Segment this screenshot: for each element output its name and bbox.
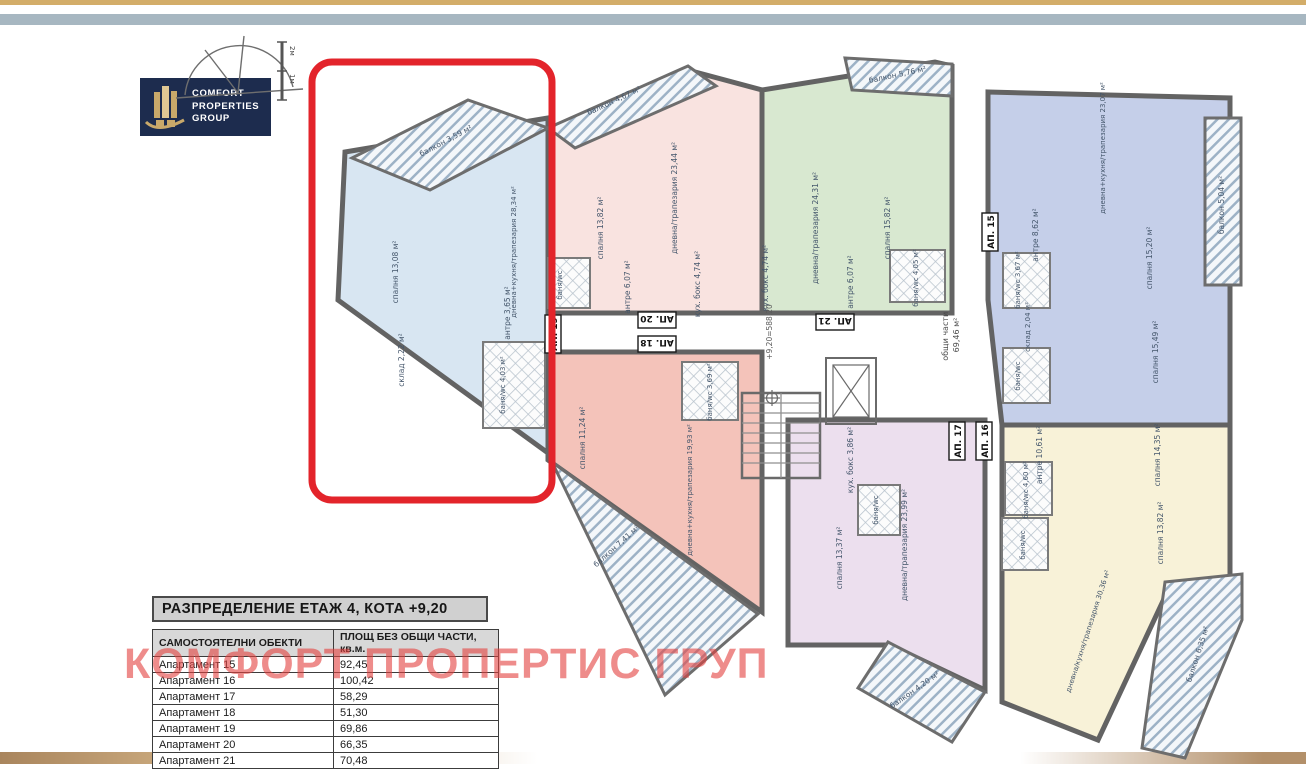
- svg-text:АП. 20: АП. 20: [640, 313, 674, 323]
- room-label: дневна/трапезария 24,31 м²: [811, 172, 820, 284]
- table-row: Апартамент 1758,29: [153, 689, 499, 705]
- badge-ap16: АП. 16: [976, 422, 992, 460]
- elevation-label: +9,20=588,20: [765, 304, 774, 360]
- table-row: Апартамент 2170,48: [153, 753, 499, 769]
- apartment-area: 70,48: [334, 753, 499, 769]
- apartment-area: 58,29: [334, 689, 499, 705]
- svg-text:АП. 18: АП. 18: [640, 337, 674, 347]
- apartment-name: Апартамент 19: [153, 721, 334, 737]
- room-label: антре 8,62 м²: [1031, 208, 1040, 261]
- room-label: баня/wc 4,60 м²: [1022, 461, 1030, 519]
- apartment-area: 69,86: [334, 721, 499, 737]
- room-label: баня/wc: [556, 270, 564, 299]
- room-label: спалня 14,35 м²: [1153, 424, 1162, 487]
- room-label: кух. бокс 4,74 м²: [761, 245, 770, 311]
- apartment-15-bathroom-2: [1003, 348, 1050, 403]
- svg-text:АП. 16: АП. 16: [981, 424, 991, 458]
- room-label: баня/wc 3,67 м²: [1014, 251, 1022, 309]
- room-label: спалня 15,49 м²: [1151, 321, 1160, 384]
- badge-ap21: АП. 21: [816, 314, 854, 330]
- room-label: дневна/трапезария 23,99 м²: [900, 489, 909, 601]
- common-area-label: общи части 69,46 м²: [941, 309, 961, 361]
- apartment-name: Апартамент 20: [153, 737, 334, 753]
- apartment-19-bathroom: [483, 342, 545, 428]
- room-label: спалня 15,82 м²: [883, 197, 892, 260]
- room-label: спалня 11,24 м²: [578, 407, 587, 470]
- table-row: Апартамент 2066,35: [153, 737, 499, 753]
- scale-label-1m: 1м: [288, 74, 296, 84]
- badge-ap15: АП. 15: [982, 213, 998, 251]
- apartment-name: Апартамент 21: [153, 753, 334, 769]
- badge-ap20: АП. 20: [638, 312, 676, 328]
- room-label: антре 10,61 м²: [1035, 426, 1044, 484]
- apartment-area: 51,30: [334, 705, 499, 721]
- room-label: спалня 15,20 м²: [1145, 227, 1154, 290]
- floor-title-block: РАЗПРЕДЕЛЕНИЕ ЕТАЖ 4, КОТА +9,20: [152, 596, 488, 622]
- room-label: баня/wc 3,69 м²: [706, 363, 714, 421]
- apartment-name: Апартамент 18: [153, 705, 334, 721]
- room-label: антре 6,07 м²: [623, 260, 632, 313]
- room-label: баня/wc 4,05 м²: [912, 249, 920, 307]
- room-label: балкон 5,04 м²: [1217, 176, 1226, 234]
- room-label: дневна/трапезария 23,44 м²: [670, 142, 679, 254]
- apartment-area: 66,35: [334, 737, 499, 753]
- room-label: антре 3,65 м²: [503, 286, 512, 339]
- table-row: Апартамент 1851,30: [153, 705, 499, 721]
- badge-ap18: АП. 18: [638, 336, 676, 352]
- brochure-page: COMFORT PROPERTIES GROUP: [0, 0, 1306, 769]
- room-label: баня/wc: [1019, 530, 1027, 559]
- watermark-text: КОМФОРТ ПРОПЕРТИС ГРУП: [124, 640, 768, 689]
- room-label: кух. бокс 3,86 м²: [846, 427, 855, 493]
- apartment-15-bathroom-1: [1003, 253, 1050, 308]
- room-label: спалня 13,82 м²: [1156, 502, 1165, 565]
- table-row: Апартамент 1969,86: [153, 721, 499, 737]
- svg-text:АП. 15: АП. 15: [987, 215, 997, 249]
- room-label: склад 2,04 м²: [1024, 302, 1032, 352]
- room-label: баня/wc: [872, 495, 880, 524]
- svg-text:АП. 21: АП. 21: [818, 315, 852, 325]
- room-label: кух. бокс 4,74 м²: [693, 251, 702, 317]
- room-label: баня/wc 4,03 м²: [499, 356, 507, 414]
- elevator: [826, 358, 876, 424]
- room-label: баня/wc: [1014, 361, 1022, 390]
- apartment-name: Апартамент 17: [153, 689, 334, 705]
- room-label: дневна+кухня/трапезария 23,07 м²: [1099, 82, 1107, 214]
- compass-sketch: [176, 36, 303, 98]
- room-label: спалня 13,08 м²: [391, 241, 400, 304]
- room-label: склад 2,22 м²: [397, 333, 406, 386]
- room-label: дневна+кухня/трапезария 19,93 м²: [686, 424, 694, 556]
- scale-label-2m: 2м: [288, 46, 296, 56]
- svg-text:АП. 17: АП. 17: [954, 424, 964, 458]
- room-label: антре 6,07 м²: [846, 255, 855, 308]
- badge-ap17: АП. 17: [949, 422, 965, 460]
- room-label: спалня 13,82 м²: [596, 197, 605, 260]
- room-label: спалня 13,37 м²: [835, 527, 844, 590]
